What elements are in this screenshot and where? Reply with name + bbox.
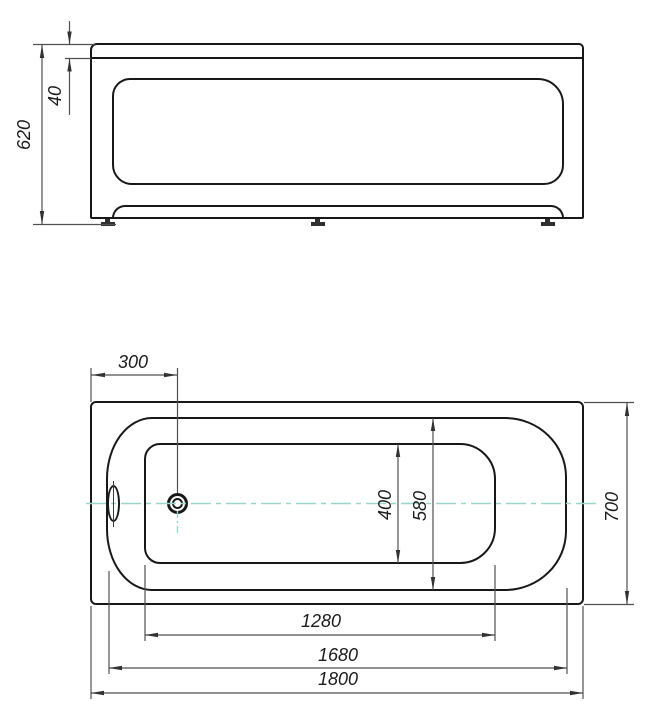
drawing-canvas: 620 40 300 400 580 700 1280 1680 1800 [0,0,653,720]
dim-label-bottom-width: 400 [376,490,394,520]
dim-label-overall-length: 1800 [318,670,358,688]
foot-left-base [101,222,115,226]
foot-right-base [541,222,555,226]
front-view-apron-panel [112,78,564,185]
front-view-skirt [112,205,564,219]
dim-label-rim-inner-width: 580 [411,491,429,521]
dim-label-rim-thickness: 40 [46,86,64,106]
overflow-hole [107,485,120,522]
foot-middle-base [311,222,325,226]
dim-label-rim-inner-length: 1680 [318,646,358,664]
dim-label-bottom-length: 1280 [301,612,341,630]
dim-label-overall-width: 700 [603,492,621,522]
drain-circle-inner [172,498,183,509]
front-view-rim-line [91,57,583,59]
plan-view-bottom-surface [144,443,496,564]
dim-40 [65,21,91,115]
dim-label-drain-offset: 300 [118,353,148,371]
dim-label-overall-height: 620 [15,120,33,150]
